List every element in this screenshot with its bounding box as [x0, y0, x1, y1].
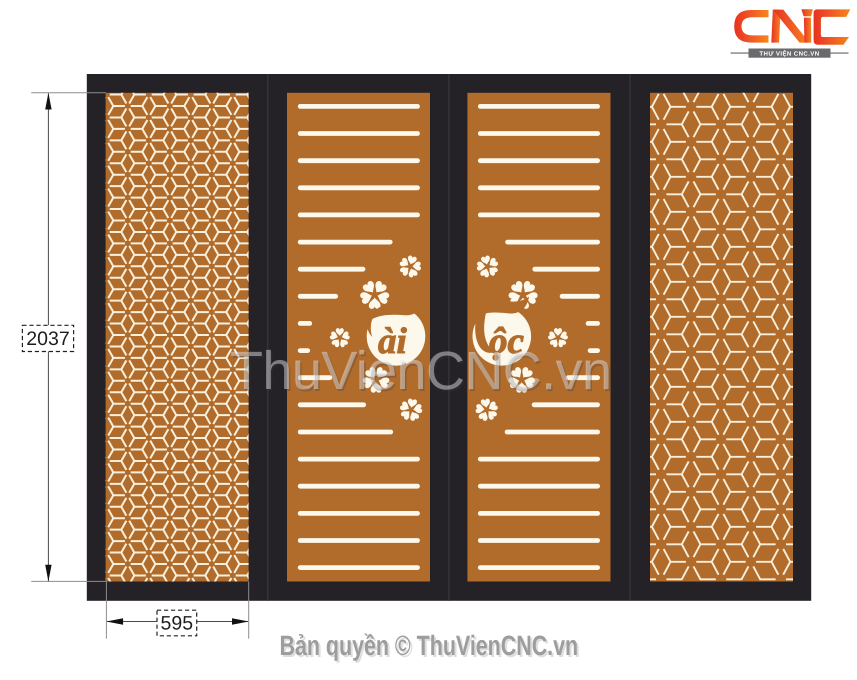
svg-text:Bản quyền © ThuVienCNC.vn: Bản quyền © ThuVienCNC.vn [279, 630, 578, 661]
svg-text:THƯ VIỆN CNC.VN: THƯ VIỆN CNC.VN [759, 50, 819, 58]
svg-text:2037: 2037 [26, 328, 69, 350]
svg-text:ThuVienCNC.vn: ThuVienCNC.vn [230, 341, 611, 401]
svg-text:595: 595 [161, 613, 194, 635]
